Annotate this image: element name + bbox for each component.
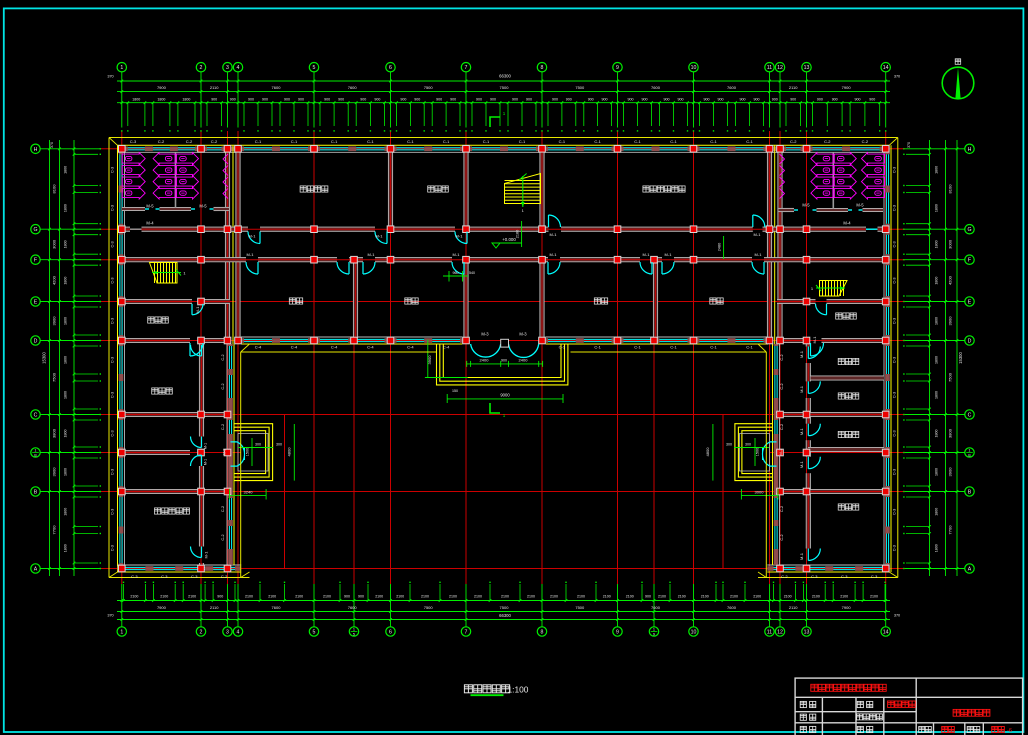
- svg-text:14: 14: [883, 630, 889, 636]
- svg-text:8100: 8100: [948, 184, 953, 194]
- svg-text:3: 3: [226, 630, 229, 636]
- svg-text:15300: 15300: [42, 352, 47, 364]
- svg-text:900: 900: [298, 97, 304, 101]
- svg-text:G: G: [33, 227, 37, 233]
- svg-text:H: H: [34, 147, 38, 153]
- svg-text:C-3: C-3: [111, 430, 115, 436]
- svg-text:1800: 1800: [64, 317, 68, 325]
- svg-text:11: 11: [767, 65, 772, 71]
- svg-text:11: 11: [767, 630, 772, 636]
- svg-text:M-1: M-1: [754, 232, 762, 237]
- svg-text:C-2: C-2: [211, 139, 218, 144]
- svg-text:7500: 7500: [52, 372, 57, 382]
- svg-text:M-1: M-1: [249, 234, 257, 239]
- svg-text:13: 13: [804, 630, 810, 636]
- svg-text:C-3: C-3: [130, 139, 137, 144]
- svg-text:1800: 1800: [64, 468, 68, 476]
- svg-text:C-2: C-2: [221, 424, 225, 430]
- svg-text:900: 900: [217, 595, 223, 599]
- svg-text:A: A: [968, 567, 972, 573]
- svg-text:900: 900: [476, 97, 482, 101]
- svg-text:C-2: C-2: [824, 139, 831, 144]
- svg-text:900: 900: [344, 595, 350, 599]
- svg-text:9: 9: [653, 633, 655, 637]
- svg-text:540: 540: [469, 271, 475, 275]
- svg-text:B: B: [968, 490, 972, 496]
- svg-text:3: 3: [226, 65, 229, 71]
- svg-text:1800: 1800: [132, 97, 140, 101]
- svg-text:2100: 2100: [870, 595, 878, 599]
- svg-text:3900: 3900: [427, 355, 432, 365]
- svg-text:1: 1: [120, 630, 123, 636]
- svg-text:2110: 2110: [210, 85, 219, 90]
- svg-text:D: D: [34, 339, 38, 345]
- svg-text:C-1: C-1: [746, 345, 753, 350]
- svg-text:900: 900: [740, 97, 746, 101]
- svg-text:M-5: M-5: [802, 203, 810, 208]
- svg-text:2: 2: [200, 65, 203, 71]
- svg-text:C-3: C-3: [893, 545, 897, 551]
- svg-text:2100: 2100: [527, 595, 535, 599]
- svg-text:900: 900: [248, 97, 254, 101]
- svg-text:M-1: M-1: [799, 552, 804, 560]
- svg-text:C-1: C-1: [483, 139, 490, 144]
- svg-text:4: 4: [237, 630, 240, 636]
- svg-text:M-1: M-1: [799, 427, 804, 435]
- svg-text:M-1: M-1: [456, 234, 464, 239]
- svg-text:66300: 66300: [499, 613, 511, 618]
- svg-text:1800: 1800: [64, 356, 68, 364]
- svg-text:2400: 2400: [519, 358, 529, 363]
- svg-text:1500: 1500: [246, 448, 250, 456]
- svg-text:4800: 4800: [705, 447, 710, 457]
- svg-text:C-2: C-2: [221, 383, 225, 389]
- svg-text:300: 300: [745, 443, 751, 447]
- svg-text:C-4: C-4: [291, 345, 298, 350]
- svg-text:+0.000: +0.000: [502, 237, 516, 242]
- svg-text:10: 10: [691, 630, 697, 636]
- svg-text:C-1: C-1: [634, 345, 641, 350]
- svg-text:C-1: C-1: [367, 139, 374, 144]
- svg-text:1800: 1800: [64, 544, 68, 552]
- svg-text:900: 900: [436, 97, 442, 101]
- svg-text:B: B: [34, 490, 38, 496]
- svg-text:C-1: C-1: [746, 139, 753, 144]
- svg-text:2100: 2100: [323, 595, 331, 599]
- svg-text:M-1: M-1: [643, 252, 651, 257]
- svg-text:7500: 7500: [424, 85, 434, 90]
- svg-text:C-1: C-1: [331, 139, 338, 144]
- svg-text:1800: 1800: [935, 277, 939, 285]
- svg-text:C-1: C-1: [407, 139, 414, 144]
- svg-text:8100: 8100: [52, 184, 57, 194]
- svg-text:C-2: C-2: [790, 139, 797, 144]
- svg-text:9: 9: [616, 630, 619, 636]
- svg-text:900: 900: [490, 97, 496, 101]
- svg-text:C-3: C-3: [841, 574, 848, 579]
- svg-text:900: 900: [566, 97, 572, 101]
- svg-text:3000: 3000: [52, 239, 57, 249]
- svg-text:M-2: M-2: [778, 448, 783, 456]
- svg-text:M-1: M-1: [195, 306, 200, 314]
- svg-text:3900: 3900: [948, 316, 953, 326]
- svg-text:C-3: C-3: [111, 469, 115, 475]
- svg-text:7600: 7600: [348, 605, 358, 610]
- svg-text:C-3: C-3: [131, 574, 138, 579]
- svg-text:-6: -6: [1007, 728, 1012, 734]
- svg-text:M-1: M-1: [799, 350, 804, 358]
- svg-text:C-1: C-1: [519, 139, 526, 144]
- svg-text:4200: 4200: [948, 275, 953, 285]
- svg-text:1800: 1800: [935, 508, 939, 516]
- svg-text:900: 900: [338, 97, 344, 101]
- svg-text:C-2: C-2: [780, 506, 784, 512]
- svg-text:15300: 15300: [958, 352, 963, 364]
- svg-text:370: 370: [50, 142, 54, 148]
- svg-text:1500: 1500: [756, 448, 760, 456]
- svg-text:2100: 2100: [268, 595, 276, 599]
- svg-text:C-2: C-2: [862, 139, 869, 144]
- svg-text:C-4: C-4: [367, 345, 374, 350]
- svg-text:M-1: M-1: [755, 252, 763, 257]
- svg-text:2100: 2100: [603, 595, 611, 599]
- svg-text:C-3: C-3: [111, 205, 115, 211]
- svg-text:12: 12: [777, 630, 783, 636]
- svg-text:7500: 7500: [500, 85, 510, 90]
- svg-text:1:100: 1:100: [508, 684, 529, 694]
- svg-text:2100: 2100: [449, 595, 457, 599]
- svg-text:C-3: C-3: [161, 574, 168, 579]
- svg-text:7700: 7700: [52, 525, 57, 535]
- svg-text:1: 1: [353, 628, 355, 632]
- svg-text:5: 5: [313, 65, 316, 71]
- svg-text:6: 6: [389, 630, 392, 636]
- svg-text:G: G: [967, 227, 971, 233]
- svg-text:7600: 7600: [727, 85, 737, 90]
- svg-text:M-1: M-1: [550, 232, 558, 237]
- svg-text:C-3: C-3: [893, 278, 897, 284]
- svg-text:C-3: C-3: [871, 574, 878, 579]
- svg-text:C-2: C-2: [221, 534, 225, 540]
- svg-text:900: 900: [501, 359, 507, 363]
- svg-text:2100: 2100: [701, 595, 709, 599]
- svg-text:M-1: M-1: [368, 252, 376, 257]
- svg-text:M-4: M-4: [146, 221, 154, 226]
- svg-text:2100: 2100: [501, 595, 509, 599]
- svg-text:2480: 2480: [718, 243, 722, 251]
- svg-text:2100: 2100: [658, 595, 666, 599]
- svg-text:7500: 7500: [948, 372, 953, 382]
- svg-text:C-1: C-1: [594, 139, 601, 144]
- svg-text:900: 900: [678, 97, 684, 101]
- svg-text:C-2: C-2: [780, 534, 784, 540]
- svg-text:14: 14: [883, 65, 889, 71]
- svg-text:7600: 7600: [727, 605, 737, 610]
- svg-text:1800: 1800: [935, 391, 939, 399]
- svg-text:1800: 1800: [935, 166, 939, 174]
- svg-text:900: 900: [645, 595, 651, 599]
- svg-text:C-1: C-1: [443, 139, 450, 144]
- svg-text:C-3: C-3: [191, 574, 198, 579]
- svg-text:C-2: C-2: [221, 354, 225, 360]
- svg-text:C-1: C-1: [634, 139, 641, 144]
- svg-text:M-1: M-1: [812, 336, 817, 344]
- svg-text:2100: 2100: [730, 595, 738, 599]
- svg-text:66300: 66300: [499, 74, 511, 79]
- svg-text:H: H: [968, 147, 972, 153]
- svg-text:10: 10: [691, 65, 697, 71]
- svg-text:900: 900: [754, 97, 760, 101]
- svg-text:900: 900: [262, 97, 268, 101]
- svg-text:6: 6: [389, 65, 392, 71]
- svg-text:C-3: C-3: [893, 241, 897, 247]
- svg-text:M-5: M-5: [856, 203, 864, 208]
- svg-text:1800: 1800: [935, 204, 939, 212]
- svg-text:900: 900: [230, 97, 236, 101]
- svg-text:C-3: C-3: [893, 469, 897, 475]
- svg-text:3800: 3800: [52, 428, 57, 438]
- svg-text:8: 8: [541, 630, 544, 636]
- svg-text:C-2: C-2: [780, 383, 784, 389]
- svg-text:2100: 2100: [550, 595, 558, 599]
- svg-text:900: 900: [552, 97, 558, 101]
- svg-text:C: C: [34, 413, 38, 419]
- svg-text:C-2: C-2: [158, 139, 165, 144]
- svg-text:900: 900: [704, 97, 710, 101]
- svg-text:F: F: [968, 258, 971, 264]
- svg-text:1800: 1800: [64, 391, 68, 399]
- svg-text:1800: 1800: [64, 240, 68, 248]
- svg-text:900: 900: [772, 97, 778, 101]
- svg-text:M-3: M-3: [519, 332, 527, 337]
- svg-text:2100: 2100: [784, 595, 792, 599]
- svg-text:3000: 3000: [948, 239, 953, 249]
- svg-text:C-1: C-1: [710, 139, 717, 144]
- svg-text:M-3: M-3: [481, 332, 489, 337]
- svg-text:2400: 2400: [480, 358, 490, 363]
- svg-text:900: 900: [358, 595, 364, 599]
- svg-text:C-1: C-1: [291, 139, 298, 144]
- svg-text:900: 900: [211, 97, 217, 101]
- svg-text:M-1: M-1: [799, 460, 804, 468]
- svg-text:370: 370: [894, 75, 900, 79]
- svg-text:M-1: M-1: [799, 385, 804, 393]
- svg-text:2100: 2100: [188, 595, 196, 599]
- svg-text:370: 370: [107, 75, 113, 79]
- svg-text:7500: 7500: [575, 85, 585, 90]
- svg-text:C-3: C-3: [111, 241, 115, 247]
- svg-text:M-1: M-1: [453, 252, 461, 257]
- svg-text:1: 1: [969, 449, 971, 453]
- svg-text:900: 900: [642, 97, 648, 101]
- svg-text:7500: 7500: [500, 605, 510, 610]
- svg-text:C-1: C-1: [594, 345, 601, 350]
- svg-text:900: 900: [817, 97, 823, 101]
- svg-text:900: 900: [664, 97, 670, 101]
- svg-text:C-3: C-3: [893, 167, 897, 173]
- svg-text:1800: 1800: [935, 317, 939, 325]
- svg-text:2180: 2180: [516, 230, 520, 238]
- svg-text:7500: 7500: [424, 605, 434, 610]
- svg-text:E: E: [968, 300, 972, 306]
- svg-text:C: C: [968, 413, 972, 419]
- svg-text:8: 8: [541, 65, 544, 71]
- svg-text:C-4: C-4: [255, 345, 262, 350]
- svg-text:1: 1: [120, 65, 123, 71]
- svg-text:900: 900: [790, 97, 796, 101]
- svg-text:C-3: C-3: [111, 318, 115, 324]
- svg-text:9: 9: [616, 65, 619, 71]
- svg-text:M-1: M-1: [665, 252, 673, 257]
- svg-text:1800: 1800: [935, 356, 939, 364]
- svg-text:M-4: M-4: [843, 221, 851, 226]
- svg-text:900: 900: [832, 97, 838, 101]
- svg-text:370: 370: [894, 614, 900, 618]
- svg-text:2100: 2100: [421, 595, 429, 599]
- svg-text:3240: 3240: [244, 489, 254, 494]
- svg-text:C-3: C-3: [111, 545, 115, 551]
- svg-text:3900: 3900: [52, 316, 57, 326]
- svg-text:1800: 1800: [935, 240, 939, 248]
- svg-text:1800: 1800: [64, 430, 68, 438]
- svg-text:960: 960: [453, 271, 459, 275]
- svg-text:C-2: C-2: [780, 424, 784, 430]
- svg-text:C-2: C-2: [186, 139, 193, 144]
- svg-text:900: 900: [588, 97, 594, 101]
- svg-text:9000: 9000: [500, 393, 510, 398]
- svg-text:M-5: M-5: [199, 204, 207, 209]
- svg-text:3900: 3900: [52, 467, 57, 477]
- svg-text:900: 900: [628, 97, 634, 101]
- svg-text:C-4: C-4: [331, 345, 338, 350]
- svg-text:2100: 2100: [295, 595, 303, 599]
- svg-text:2100: 2100: [626, 595, 634, 599]
- svg-text:C-3: C-3: [111, 278, 115, 284]
- svg-text:C-2: C-2: [780, 354, 784, 360]
- svg-text:900: 900: [526, 97, 532, 101]
- svg-text:3800: 3800: [948, 428, 953, 438]
- svg-text:M-1: M-1: [204, 443, 208, 450]
- svg-text:C-3: C-3: [111, 167, 115, 173]
- svg-text:M-5: M-5: [146, 204, 154, 209]
- svg-text:7900: 7900: [157, 85, 167, 90]
- svg-text:4800: 4800: [287, 447, 292, 457]
- svg-text:1: 1: [653, 628, 655, 632]
- svg-text:3000: 3000: [755, 489, 765, 494]
- svg-text:1800: 1800: [64, 204, 68, 212]
- svg-text:900: 900: [855, 97, 861, 101]
- svg-text:7900: 7900: [842, 605, 852, 610]
- svg-text:C-1: C-1: [559, 139, 566, 144]
- svg-text:7600: 7600: [272, 85, 282, 90]
- svg-text:M-1: M-1: [204, 551, 209, 559]
- svg-text:5: 5: [313, 630, 316, 636]
- svg-text:C-3: C-3: [893, 205, 897, 211]
- svg-text:1800: 1800: [157, 97, 165, 101]
- svg-text:C-3: C-3: [811, 574, 818, 579]
- svg-text:1800: 1800: [64, 277, 68, 285]
- svg-text:900: 900: [400, 97, 406, 101]
- svg-text:F: F: [34, 258, 37, 264]
- svg-text:4: 4: [237, 65, 240, 71]
- svg-text:2110: 2110: [789, 85, 798, 90]
- svg-text:C-3: C-3: [893, 430, 897, 436]
- svg-text:M-1: M-1: [247, 252, 255, 257]
- svg-text:150: 150: [452, 389, 458, 393]
- svg-text:900: 900: [602, 97, 608, 101]
- svg-text:5: 5: [353, 633, 355, 637]
- svg-text:E: E: [34, 300, 38, 306]
- svg-text:900: 900: [360, 97, 366, 101]
- svg-text:M-1: M-1: [550, 252, 558, 257]
- svg-text:C-1: C-1: [670, 139, 677, 144]
- svg-text:2100: 2100: [375, 595, 383, 599]
- svg-text:7: 7: [465, 65, 468, 71]
- svg-text:7600: 7600: [651, 605, 661, 610]
- svg-text:C-1: C-1: [670, 345, 677, 350]
- svg-text:300: 300: [255, 443, 261, 447]
- svg-text:C-2: C-2: [221, 574, 228, 579]
- svg-text:C-4: C-4: [443, 345, 450, 350]
- svg-text:2110: 2110: [210, 605, 219, 610]
- svg-text:900: 900: [450, 97, 456, 101]
- svg-text:900: 900: [512, 97, 518, 101]
- svg-text:1800: 1800: [935, 544, 939, 552]
- svg-text:C-2: C-2: [221, 506, 225, 512]
- svg-text:12: 12: [777, 65, 783, 71]
- svg-text:900: 900: [414, 97, 420, 101]
- svg-text:2100: 2100: [474, 595, 482, 599]
- svg-text:C-4: C-4: [407, 345, 414, 350]
- svg-text:2100: 2100: [753, 595, 761, 599]
- svg-text:2: 2: [200, 630, 203, 636]
- svg-text:C-3: C-3: [893, 318, 897, 324]
- svg-text:370: 370: [907, 142, 911, 148]
- svg-text:M-2: M-2: [222, 448, 227, 456]
- svg-text:3900: 3900: [948, 467, 953, 477]
- svg-text:2100: 2100: [577, 595, 585, 599]
- svg-text:370: 370: [107, 614, 113, 618]
- svg-text:C-2: C-2: [781, 574, 788, 579]
- svg-text:2100: 2100: [396, 595, 404, 599]
- svg-text:2110: 2110: [789, 605, 798, 610]
- svg-text:1: 1: [35, 449, 37, 453]
- svg-text:1800: 1800: [935, 468, 939, 476]
- svg-text:900: 900: [718, 97, 724, 101]
- svg-text:1800: 1800: [182, 97, 190, 101]
- svg-text:300: 300: [726, 443, 732, 447]
- svg-text:4200: 4200: [52, 275, 57, 285]
- svg-text:C-3: C-3: [893, 509, 897, 515]
- svg-text:2100: 2100: [812, 595, 820, 599]
- svg-text:M-1: M-1: [376, 234, 384, 239]
- svg-text:C-3: C-3: [893, 357, 897, 363]
- svg-text:7900: 7900: [842, 85, 852, 90]
- svg-text:7: 7: [465, 630, 468, 636]
- svg-text:1800: 1800: [64, 508, 68, 516]
- svg-text:C-3: C-3: [111, 392, 115, 398]
- svg-text:900: 900: [324, 97, 330, 101]
- svg-text:C-3: C-3: [893, 392, 897, 398]
- svg-text:7600: 7600: [651, 85, 661, 90]
- svg-text:7900: 7900: [157, 605, 167, 610]
- svg-text:M-1: M-1: [204, 459, 208, 466]
- svg-text:900: 900: [869, 97, 875, 101]
- svg-text:13: 13: [804, 65, 810, 71]
- svg-text:D: D: [968, 339, 972, 345]
- svg-text:C-1: C-1: [710, 345, 717, 350]
- svg-text:2100: 2100: [130, 595, 138, 599]
